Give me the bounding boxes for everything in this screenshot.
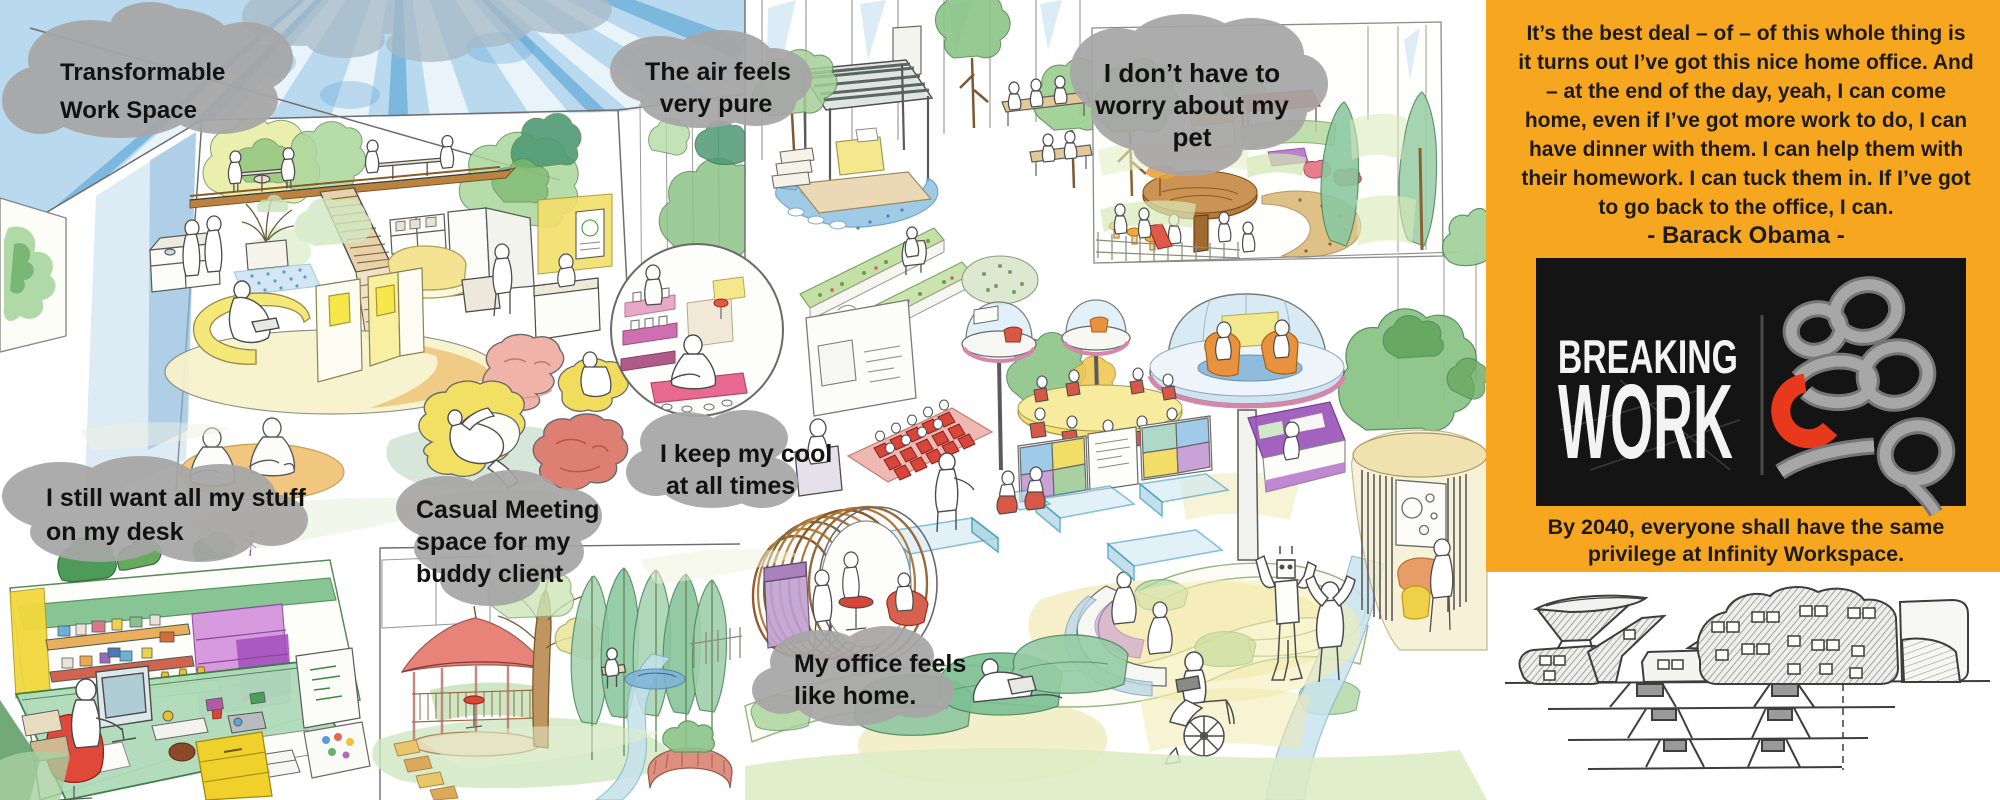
svg-text:worry about my: worry about my (1094, 90, 1289, 120)
svg-text:buddy client: buddy client (416, 560, 564, 588)
svg-text:I keep my cool: I keep my cool (660, 440, 832, 468)
svg-text:My office feels: My office feels (794, 650, 966, 678)
svg-text:on my desk: on my desk (46, 518, 184, 546)
svg-text:at all times: at all times (666, 472, 795, 500)
svg-text:pet: pet (1173, 122, 1212, 152)
svg-text:The air feels: The air feels (645, 58, 791, 86)
svg-text:to go back to the office, I ca: to go back to the office, I can. (1598, 196, 1893, 219)
svg-text:By 2040, everyone shall have t: By 2040, everyone shall have the same (1548, 515, 1945, 539)
svg-text:– at the end of the day, yeah,: – at the end of the day, yeah, I can com… (1546, 80, 1946, 103)
svg-text:space for my: space for my (416, 528, 570, 556)
svg-text:- Barack Obama -: - Barack Obama - (1647, 222, 1844, 249)
svg-text:very pure: very pure (660, 90, 773, 118)
svg-text:Casual Meeting: Casual Meeting (416, 496, 599, 524)
svg-text:have dinner with them. I can h: have dinner with them. I can help them w… (1529, 138, 1963, 161)
svg-text:their homework. I can tuck the: their homework. I can tuck them in. If I… (1521, 167, 1970, 190)
svg-text:like home.: like home. (794, 682, 916, 710)
svg-text:WORK: WORK (1558, 361, 1733, 480)
svg-text:it turns out I’ve got this nic: it turns out I’ve got this nice home off… (1518, 51, 1973, 74)
svg-text:It’s the best deal – of – of t: It’s the best deal – of – of this whole … (1526, 22, 1965, 45)
svg-text:privilege at Infinity Workspac: privilege at Infinity Workspace. (1588, 542, 1904, 566)
svg-text:Work Space: Work Space (60, 97, 197, 124)
svg-text:home, even if I’ve got more wo: home, even if I’ve got more work to do, … (1525, 109, 1967, 132)
svg-text:I don’t have to: I don’t have to (1104, 58, 1280, 88)
svg-text:I still want all my stuff: I still want all my stuff (46, 484, 306, 512)
svg-text:Transformable: Transformable (60, 59, 225, 86)
